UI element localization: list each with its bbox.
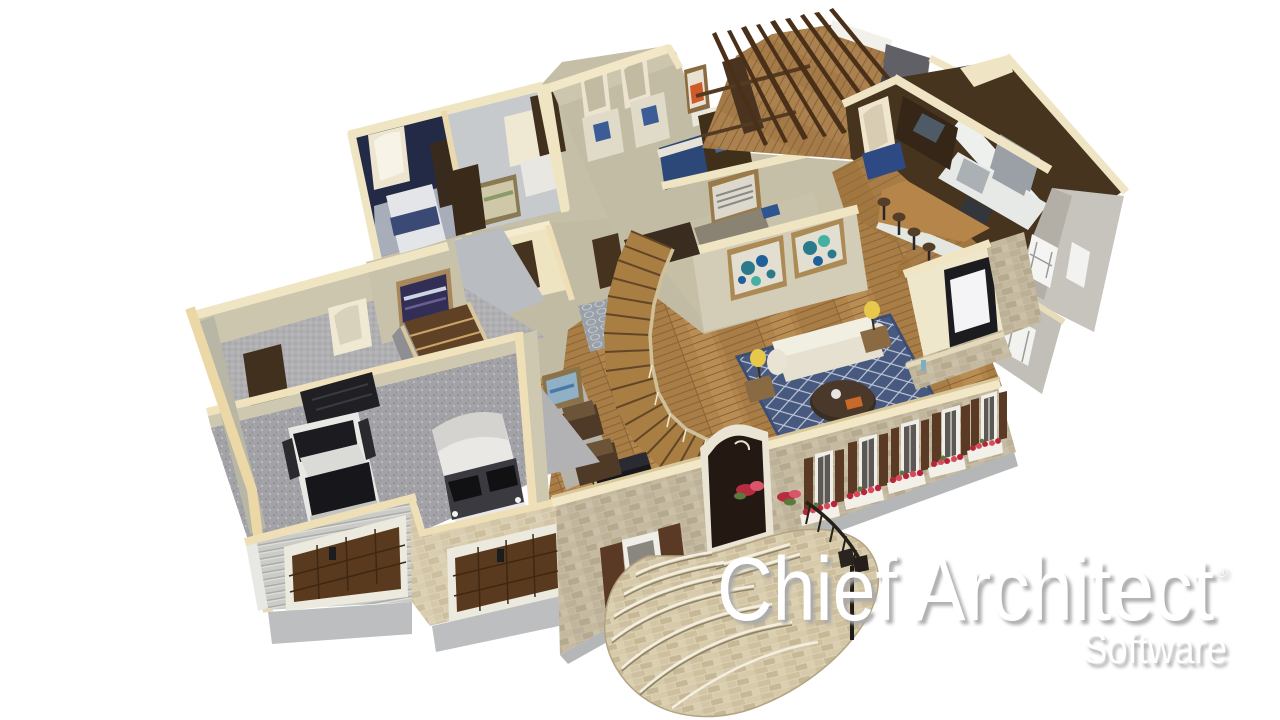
svg-text:®: ®	[1216, 564, 1228, 581]
svg-text:Software: Software	[1083, 625, 1227, 673]
